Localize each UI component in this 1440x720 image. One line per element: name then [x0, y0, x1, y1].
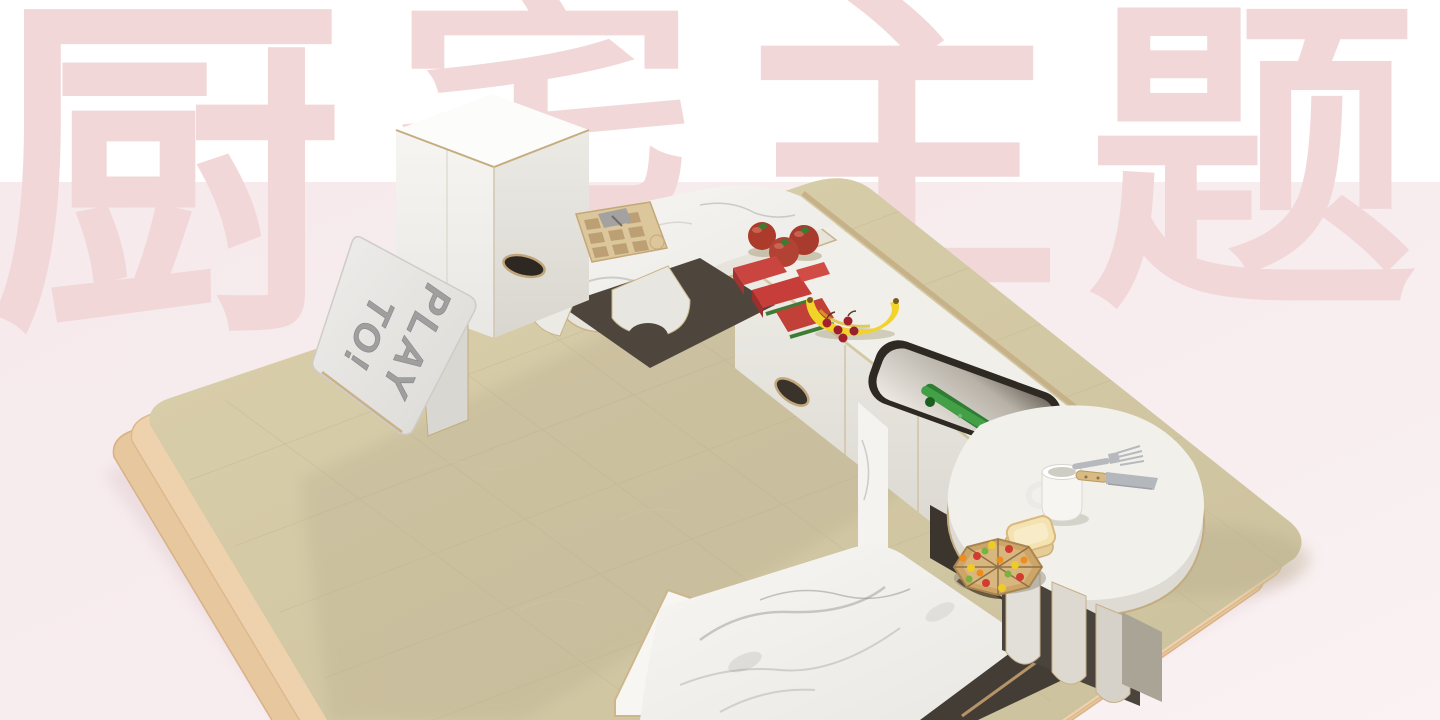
kitchen-playset-scene: PLAY TO! [0, 0, 1440, 720]
banana-stem [807, 297, 813, 303]
topping-dot [982, 548, 989, 555]
mug-interior [1048, 467, 1076, 477]
topping-dot [1016, 573, 1024, 581]
topping-dot [982, 579, 990, 587]
knife-rivet [1097, 477, 1100, 480]
topping-dot [1021, 557, 1028, 564]
topping-dot [966, 576, 973, 583]
foot-arch-cutout [628, 323, 668, 349]
curved-leg [1052, 582, 1086, 684]
topping-dot [997, 557, 1004, 564]
cherry [823, 319, 832, 328]
cherry [850, 327, 859, 336]
topping-dot [960, 555, 967, 562]
topping-dot [1011, 561, 1019, 569]
topping-dot [973, 552, 981, 560]
cherry [844, 317, 853, 326]
poster: 厨 宅 主 题 [0, 0, 1440, 720]
topping-dot [1005, 571, 1012, 578]
knife-rivet [1085, 476, 1088, 479]
cherry [834, 326, 843, 335]
dough-ball [650, 235, 664, 249]
topping-dot [977, 570, 984, 577]
topping-dot [998, 584, 1006, 592]
faucet-knob [925, 397, 935, 407]
faucet-highlight [958, 414, 962, 418]
fork-head [1108, 452, 1120, 464]
banana-tip [893, 298, 899, 304]
cherry [839, 334, 848, 343]
topping-dot [967, 564, 975, 572]
topping-dot [1005, 545, 1013, 553]
topping-dot [988, 541, 996, 549]
